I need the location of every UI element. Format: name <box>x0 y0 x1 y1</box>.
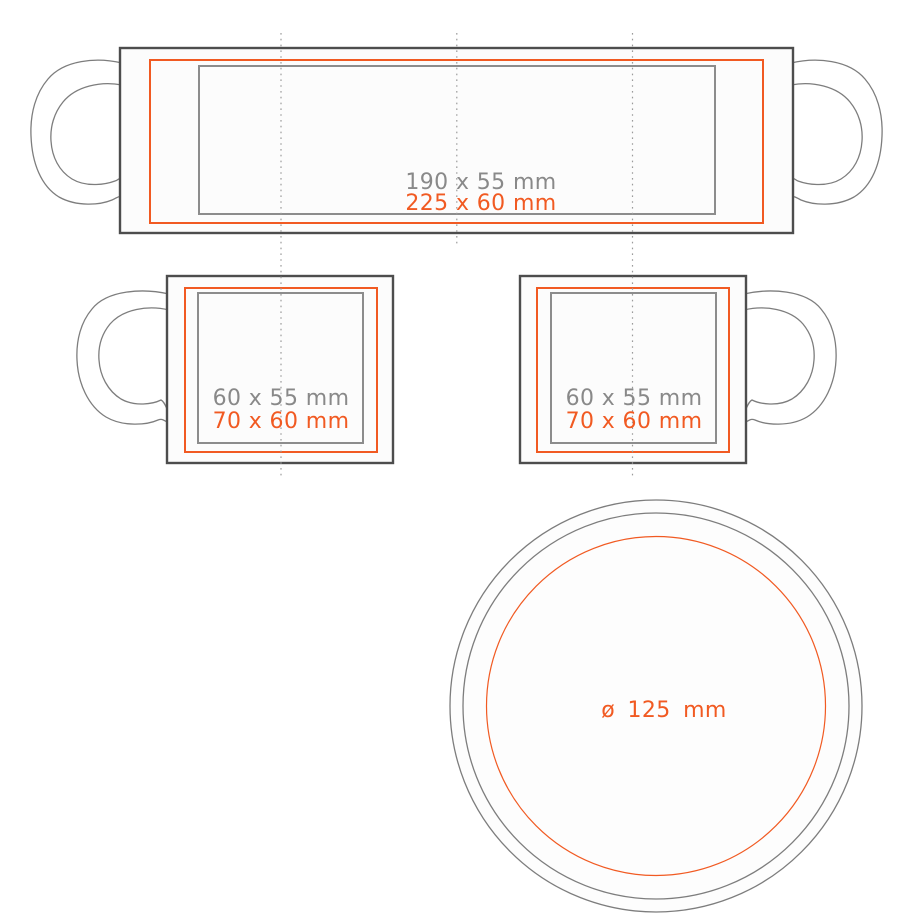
mug-left-figure <box>77 276 393 463</box>
mug-right-handle-icon <box>744 291 836 424</box>
mug-left-max-size-label: 70 x 60 mm <box>213 409 350 434</box>
mug-left-print-size-label: 60 x 55 mm <box>213 386 350 411</box>
mug-right-print-size-label: 60 x 55 mm <box>566 386 703 411</box>
print-area-diagram: 190 x 55 mm 225 x 60 mm 60 x 55 mm 70 x … <box>0 0 900 923</box>
mug-left-handle-icon <box>77 291 169 424</box>
print-area-diagram-page: 190 x 55 mm 225 x 60 mm 60 x 55 mm 70 x … <box>0 0 900 923</box>
mug-right-max-size-label: 70 x 60 mm <box>566 409 703 434</box>
wrap-right-handle-inner-icon <box>791 84 862 185</box>
mug-left-handle-inner-icon <box>99 308 169 413</box>
wrap-max-size-label: 225 x 60 mm <box>405 191 556 216</box>
mug-left-body-outline <box>167 276 393 463</box>
base-diameter-label: ø 125 mm <box>601 698 727 723</box>
wrap-left-handle-inner-icon <box>51 84 122 185</box>
mug-right-handle-inner-icon <box>744 308 814 413</box>
mug-right-figure <box>520 276 836 463</box>
